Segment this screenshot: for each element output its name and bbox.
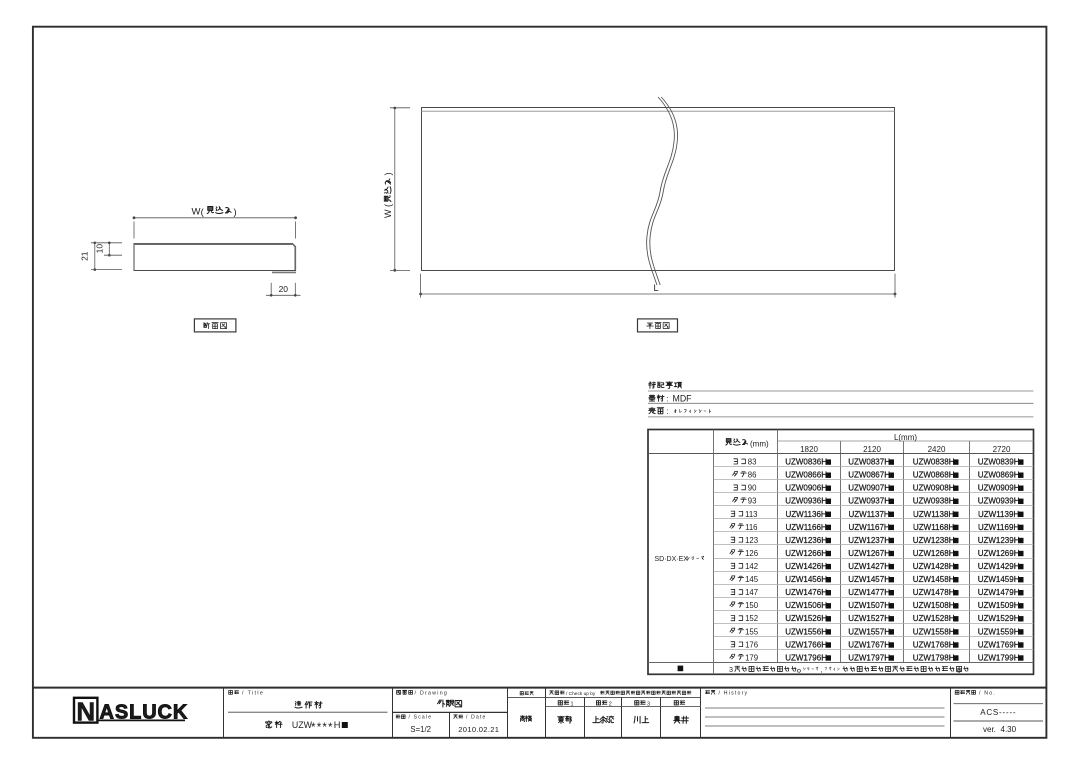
svg-text:UZW1168H: UZW1168H — [913, 523, 954, 532]
svg-text:/ Date: / Date — [466, 715, 487, 721]
svg-text:UZW0868H: UZW0868H — [913, 471, 955, 480]
svg-text:UZW1528H: UZW1528H — [913, 614, 955, 623]
svg-text:UZW1796H: UZW1796H — [785, 653, 827, 662]
svg-text:UZW1477H: UZW1477H — [848, 588, 890, 597]
svg-text:21: 21 — [80, 251, 90, 261]
svg-text:UZW1527H: UZW1527H — [848, 614, 890, 623]
svg-text:147: 147 — [745, 588, 758, 597]
svg-text:UZW1556H: UZW1556H — [785, 627, 827, 636]
svg-text:/ Scale: / Scale — [409, 715, 433, 721]
svg-text:): ) — [383, 172, 393, 175]
svg-text:2010.02.21: 2010.02.21 — [458, 725, 499, 734]
svg-text:150: 150 — [745, 601, 759, 610]
svg-text:UZW0938H: UZW0938H — [913, 497, 955, 506]
svg-text:UZW1137H: UZW1137H — [848, 510, 889, 519]
svg-text:L(mm): L(mm) — [894, 433, 917, 442]
svg-text:(: ( — [201, 207, 205, 218]
svg-text:142: 142 — [745, 562, 758, 571]
svg-text:UZW1427H: UZW1427H — [848, 562, 890, 571]
svg-text:UZW1457H: UZW1457H — [848, 575, 890, 584]
svg-text:*: * — [311, 721, 316, 734]
svg-text:(mm): (mm) — [750, 439, 769, 448]
svg-text:*: * — [317, 721, 322, 734]
svg-text:UZW1136H: UZW1136H — [785, 510, 826, 519]
svg-text:UZW1526H: UZW1526H — [785, 614, 827, 623]
svg-text:UZW0866H: UZW0866H — [785, 471, 827, 480]
svg-text:UZW0906H: UZW0906H — [785, 484, 827, 493]
svg-text:UZW0939H: UZW0939H — [978, 497, 1020, 506]
svg-text:UZW1139H: UZW1139H — [978, 510, 1019, 519]
svg-text:N: N — [76, 696, 95, 726]
svg-text:179: 179 — [745, 653, 758, 662]
svg-text:3: 3 — [729, 665, 733, 674]
svg-text:/ No.: / No. — [979, 690, 996, 696]
svg-text:UZW1428H: UZW1428H — [913, 562, 955, 571]
svg-text:UZW0909H: UZW0909H — [978, 484, 1020, 493]
svg-text:SD·DX·EX: SD·DX·EX — [655, 556, 689, 563]
svg-text:/ Check up by: / Check up by — [566, 691, 596, 697]
svg-text:UZW1458H: UZW1458H — [913, 575, 955, 584]
svg-text:UZW0838H: UZW0838H — [913, 458, 955, 467]
svg-text:UZW1767H: UZW1767H — [848, 640, 890, 649]
svg-text:W (: W ( — [383, 204, 393, 218]
svg-text:UZW1426H: UZW1426H — [785, 562, 827, 571]
svg-text:UZW1768H: UZW1768H — [913, 640, 955, 649]
svg-text:UZW1766H: UZW1766H — [785, 640, 827, 649]
svg-text:126: 126 — [745, 549, 758, 558]
svg-text:UZW1799H: UZW1799H — [978, 653, 1020, 662]
svg-text:UZW: UZW — [292, 720, 313, 730]
svg-text:UZW1167H: UZW1167H — [848, 523, 889, 532]
svg-text:UZW1798H: UZW1798H — [913, 653, 955, 662]
svg-text:UZW0837H: UZW0837H — [848, 458, 890, 467]
svg-text:2120: 2120 — [863, 445, 881, 454]
svg-text:155: 155 — [745, 627, 759, 636]
svg-text:UZW1797H: UZW1797H — [848, 653, 890, 662]
svg-text:20: 20 — [279, 284, 289, 294]
svg-text:UZW1266H: UZW1266H — [785, 549, 827, 558]
svg-text:UZW1429H: UZW1429H — [978, 562, 1020, 571]
svg-text:/ History: / History — [719, 690, 749, 696]
svg-text:*: * — [322, 721, 327, 734]
svg-text:ACS-----: ACS----- — [980, 708, 1016, 717]
svg-text:ver.: ver. — [983, 725, 996, 734]
svg-text:152: 152 — [745, 614, 758, 623]
svg-text:UZW1478H: UZW1478H — [913, 588, 955, 597]
svg-text:*: * — [328, 721, 333, 734]
svg-text:UZW1169H: UZW1169H — [978, 523, 1019, 532]
svg-text:MDF: MDF — [673, 393, 693, 403]
svg-text:UZW0937H: UZW0937H — [848, 497, 890, 506]
svg-text:UZW1237H: UZW1237H — [848, 536, 890, 545]
svg-text:UZW1529H: UZW1529H — [978, 614, 1020, 623]
svg-text:UZW1456H: UZW1456H — [785, 575, 827, 584]
svg-text:123: 123 — [745, 536, 758, 545]
svg-text:93: 93 — [748, 497, 757, 506]
svg-text:W: W — [192, 207, 201, 218]
svg-text:S=1/2: S=1/2 — [410, 725, 431, 734]
svg-text::: : — [667, 407, 669, 416]
svg-text:UZW1506H: UZW1506H — [785, 601, 827, 610]
svg-text::: : — [667, 394, 669, 403]
svg-text:90: 90 — [748, 484, 757, 493]
svg-text:): ) — [234, 207, 237, 218]
svg-text:UZW1559H: UZW1559H — [978, 627, 1020, 636]
svg-text:113: 113 — [745, 510, 757, 519]
svg-text:1820: 1820 — [800, 445, 818, 454]
svg-text:UZW1509H: UZW1509H — [978, 601, 1020, 610]
svg-text:83: 83 — [748, 458, 757, 467]
svg-text:UZW0836H: UZW0836H — [785, 458, 827, 467]
svg-text:UZW1769H: UZW1769H — [978, 640, 1020, 649]
svg-text:UZW1507H: UZW1507H — [848, 601, 890, 610]
svg-text:/ Drawing: / Drawing — [415, 690, 449, 696]
svg-text:145: 145 — [745, 575, 759, 584]
svg-text:UZW1268H: UZW1268H — [913, 549, 955, 558]
svg-text:UZW0867H: UZW0867H — [848, 471, 890, 480]
svg-text:UZW1269H: UZW1269H — [978, 549, 1020, 558]
svg-text:UZW1476H: UZW1476H — [785, 588, 827, 597]
svg-text:UZW1479H: UZW1479H — [978, 588, 1020, 597]
svg-text:116: 116 — [745, 523, 757, 532]
svg-text:UZW0936H: UZW0936H — [785, 497, 827, 506]
svg-text:H: H — [334, 720, 341, 730]
svg-text:2420: 2420 — [928, 445, 946, 454]
svg-text:UZW1166H: UZW1166H — [785, 523, 826, 532]
svg-text:UZW1138H: UZW1138H — [913, 510, 954, 519]
svg-text:/ Title: / Title — [242, 690, 264, 696]
svg-text:176: 176 — [745, 640, 758, 649]
svg-text:,: , — [821, 667, 823, 674]
svg-text:UZW1557H: UZW1557H — [848, 627, 890, 636]
svg-text:UZW0839H: UZW0839H — [978, 458, 1020, 467]
svg-text:UZW0869H: UZW0869H — [978, 471, 1020, 480]
svg-text:2720: 2720 — [993, 445, 1011, 454]
svg-text:10: 10 — [94, 244, 104, 254]
svg-text:UZW1239H: UZW1239H — [978, 536, 1020, 545]
svg-text:UZW1236H: UZW1236H — [785, 536, 827, 545]
svg-text:UZW1238H: UZW1238H — [913, 536, 955, 545]
svg-text:UZW0907H: UZW0907H — [848, 484, 890, 493]
svg-text:86: 86 — [748, 471, 757, 480]
svg-text:L: L — [653, 283, 658, 293]
svg-text:UZW1459H: UZW1459H — [978, 575, 1020, 584]
svg-text:UZW0908H: UZW0908H — [913, 484, 955, 493]
svg-text:UZW1558H: UZW1558H — [913, 627, 955, 636]
svg-text:4.30: 4.30 — [1001, 725, 1017, 734]
svg-text:UZW1267H: UZW1267H — [848, 549, 890, 558]
svg-text:UZW1508H: UZW1508H — [913, 601, 955, 610]
